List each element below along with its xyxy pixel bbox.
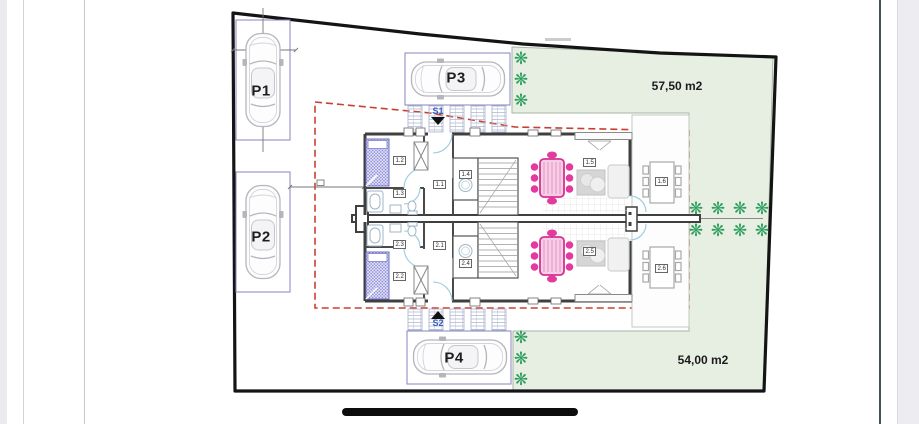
tree-icon: ❋: [755, 221, 769, 240]
room-label-2-3: 2.3: [393, 240, 406, 249]
tree-icon: ❋: [514, 49, 528, 68]
parking-label-p2: P2: [251, 229, 270, 246]
stairs-unit1: [478, 158, 518, 215]
tree-icon: ❋: [514, 370, 528, 389]
entrance-label-s1: S1: [432, 106, 443, 116]
tree-icon: ❋: [711, 221, 725, 240]
room-label-2-4: 2.4: [459, 259, 472, 268]
boundary-dimension-text: [545, 38, 571, 41]
room-label-2-6: 2.6: [655, 264, 668, 273]
tree-icon: ❋: [689, 199, 703, 218]
scale-bar: [342, 408, 578, 416]
room-label-1-5: 1.5: [583, 158, 596, 167]
stairs-unit2: [478, 222, 518, 278]
car-p1: [243, 34, 284, 127]
room-label-2-5: 2.5: [583, 247, 596, 256]
green-area-size-top: 57,50 m2: [652, 79, 703, 93]
room-label-1-2: 1.2: [393, 156, 406, 165]
room-label-1-1: 1.1: [433, 180, 446, 189]
room-label-2-2: 2.2: [393, 272, 406, 281]
tree-icon: ❋: [514, 70, 528, 89]
parking-label-p3: P3: [446, 70, 465, 87]
bed-unit1: [366, 139, 389, 186]
tree-icon: ❋: [711, 199, 725, 218]
parking-label-p1: P1: [251, 83, 270, 100]
bed-unit2: [366, 252, 389, 299]
room-label-1-4: 1.4: [459, 170, 472, 179]
parking-label-p4: P4: [444, 350, 463, 367]
room-label-1-6: 1.6: [655, 177, 668, 186]
tree-icon: ❋: [514, 328, 528, 347]
tree-icon: ❋: [514, 349, 528, 368]
entrance-label-s2: S2: [432, 318, 443, 328]
room-label-2-1: 2.1: [433, 241, 446, 250]
floor-plan-screenshot: ❋ ❋ ❋ ❋ ❋ ❋ ❋ ❋ ❋ ❋ ❋ ❋ ❋ ❋ P1 P2 P3 P4 …: [0, 0, 919, 424]
room-label-1-3: 1.3: [393, 189, 406, 198]
tree-icon: ❋: [514, 91, 528, 110]
tree-icon: ❋: [755, 199, 769, 218]
green-area-size-bottom: 54,00 m2: [678, 353, 729, 367]
tree-icon: ❋: [689, 221, 703, 240]
tree-icon: ❋: [733, 199, 747, 218]
tree-icon: ❋: [733, 221, 747, 240]
